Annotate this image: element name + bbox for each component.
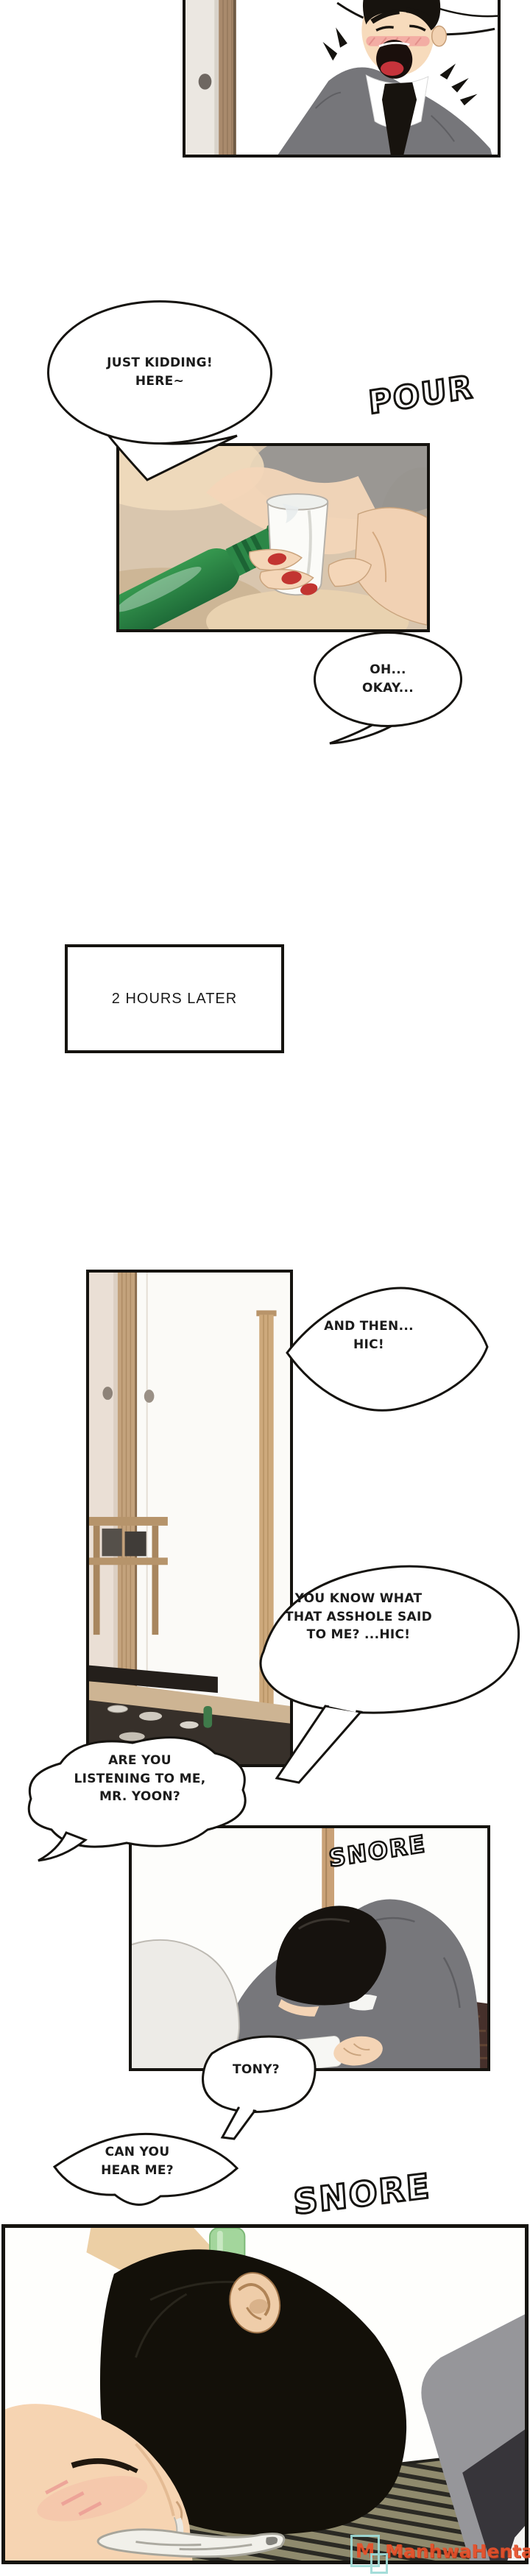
bubble-line: LISTENING TO ME, (29, 1770, 250, 1788)
speech-bubble-hear-me: CAN YOU HEAR ME? (25, 2124, 253, 2218)
speech-bubble-you-know: YOU KNOW WHAT THAT ASSHOLE SAID TO ME? .… (244, 1557, 530, 1788)
watermark-badge: M (350, 2535, 380, 2567)
caption-text: 2 HOURS LATER (112, 991, 237, 1008)
laughing-man (278, 0, 492, 155)
watermark-name: ManhwaHentai (385, 2541, 530, 2562)
panel-sleeping-face-closeup (1, 2224, 529, 2564)
bubble-line: OKAY... (362, 679, 414, 698)
sfx-snore-big: SNORE (292, 2166, 432, 2223)
sfx-pour: POUR (367, 369, 476, 422)
caption-2-hours-later: 2 HOURS LATER (65, 944, 284, 1053)
bubble-line: OH... (362, 661, 414, 679)
panel-laughing-man (183, 0, 501, 158)
bubble-line: YOU KNOW WHAT (259, 1590, 458, 1608)
site-watermark: M ManhwaHentai (350, 2535, 530, 2567)
comic-page: JUST KIDDING! HERE~ POUR (0, 0, 530, 2576)
bubble-line: HIC! (284, 1336, 453, 1354)
door-handle (102, 1387, 113, 1400)
door-knob (199, 74, 212, 90)
door-handle (144, 1390, 155, 1403)
bubble-line: ARE YOU (29, 1752, 250, 1770)
bubble-line: AND THEN... (284, 1317, 453, 1336)
door-frame (185, 0, 236, 155)
speech-bubble-just-kidding: JUST KIDDING! HERE~ (47, 300, 272, 445)
bubble-line: MR. YOON? (29, 1788, 250, 1806)
bubble-line: CAN YOU (25, 2143, 250, 2162)
bubble-line: TONY? (190, 2061, 322, 2079)
bubble-line: JUST KIDDING! (107, 354, 213, 372)
bubble-line: HERE~ (107, 372, 213, 391)
speech-bubble-listening: ARE YOU LISTENING TO ME, MR. YOON? (22, 1728, 256, 1866)
bubble-line: HEAR ME? (25, 2162, 250, 2180)
speech-bubble-and-then: AND THEN... HIC! (284, 1278, 490, 1418)
bubble-line: TO ME? ...HIC! (259, 1626, 458, 1644)
bubble-line: THAT ASSHOLE SAID (259, 1608, 458, 1627)
speech-bubble-oh-okay: OH... OKAY... (314, 631, 462, 727)
